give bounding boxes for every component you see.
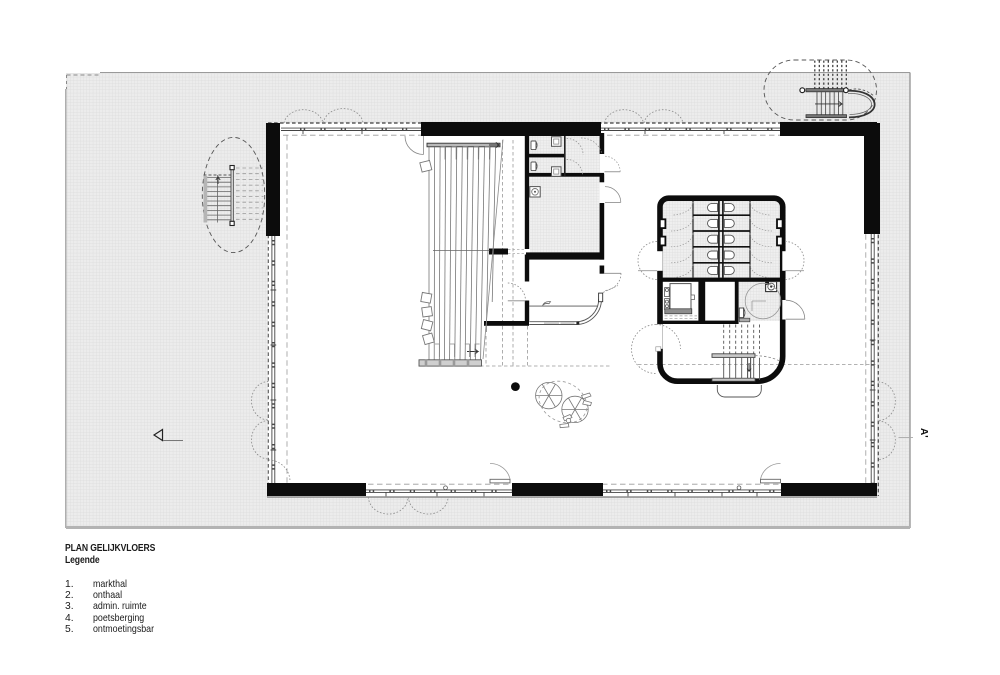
svg-text:A': A' bbox=[918, 428, 929, 438]
